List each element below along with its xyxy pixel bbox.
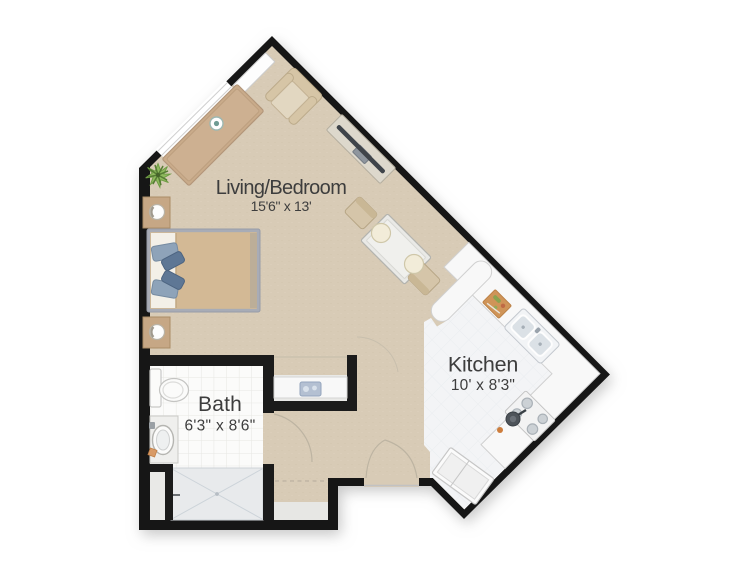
- svg-text:15'6" x 13': 15'6" x 13': [251, 198, 312, 214]
- svg-text:10' x 8'3": 10' x 8'3": [451, 377, 515, 394]
- svg-text:Living/Bedroom: Living/Bedroom: [216, 177, 347, 199]
- svg-text:6'3" x 8'6": 6'3" x 8'6": [184, 418, 255, 435]
- svg-text:Bath: Bath: [198, 393, 242, 416]
- svg-text:Kitchen: Kitchen: [448, 353, 518, 377]
